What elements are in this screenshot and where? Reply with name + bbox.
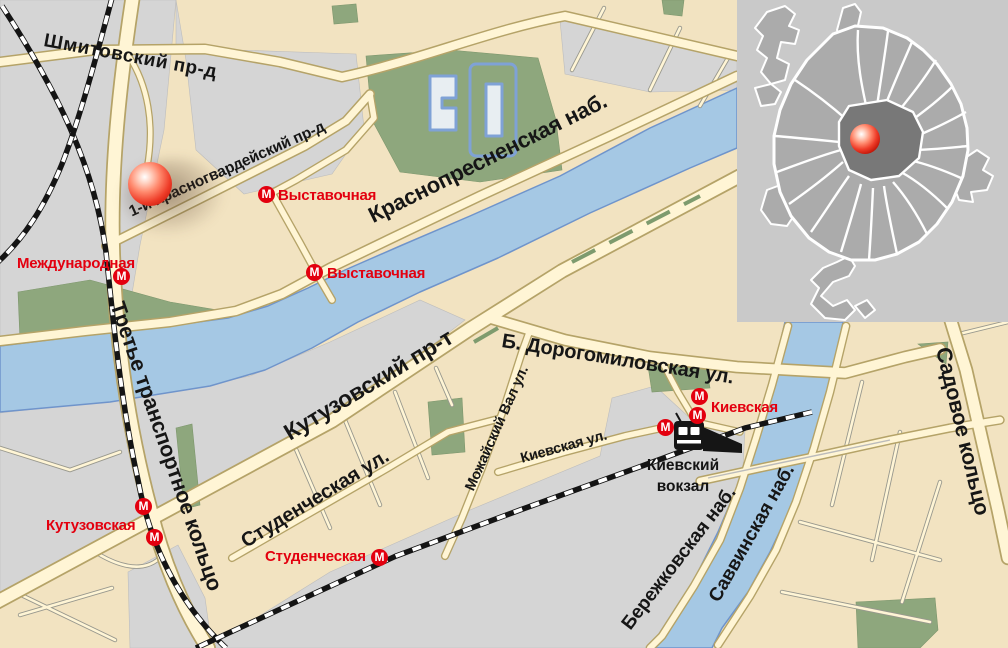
metro-icon: М	[371, 549, 388, 566]
metro-label-vystavochnaya-1: Выставочная	[278, 188, 376, 203]
metro-icon: М	[258, 186, 275, 203]
metro-icon: М	[306, 264, 323, 281]
metro-label-vystavochnaya-2: Выставочная	[327, 266, 425, 281]
metro-icon: М	[135, 498, 152, 515]
metro-icon: М	[689, 407, 706, 424]
inset-location-marker	[850, 124, 880, 154]
metro-icon: М	[657, 419, 674, 436]
inset-overview-map	[737, 0, 1008, 322]
metro-label-kutuzovskaya: Кутузовская	[46, 518, 135, 533]
map-viewport: Шмитовский пр-д 1-й Красногвардейский пр…	[0, 0, 1008, 648]
location-marker	[128, 162, 172, 206]
metro-icon: М	[691, 388, 708, 405]
metro-icon: М	[146, 529, 163, 546]
metro-label-studencheskaya: Студенческая	[265, 549, 366, 564]
metro-label-kievskaya: Киевская	[711, 400, 778, 415]
metro-label-mezhdunarodnaya: Международная	[17, 256, 135, 271]
poi-label-kievsky-vokzal: Киевский вокзал	[637, 456, 729, 498]
